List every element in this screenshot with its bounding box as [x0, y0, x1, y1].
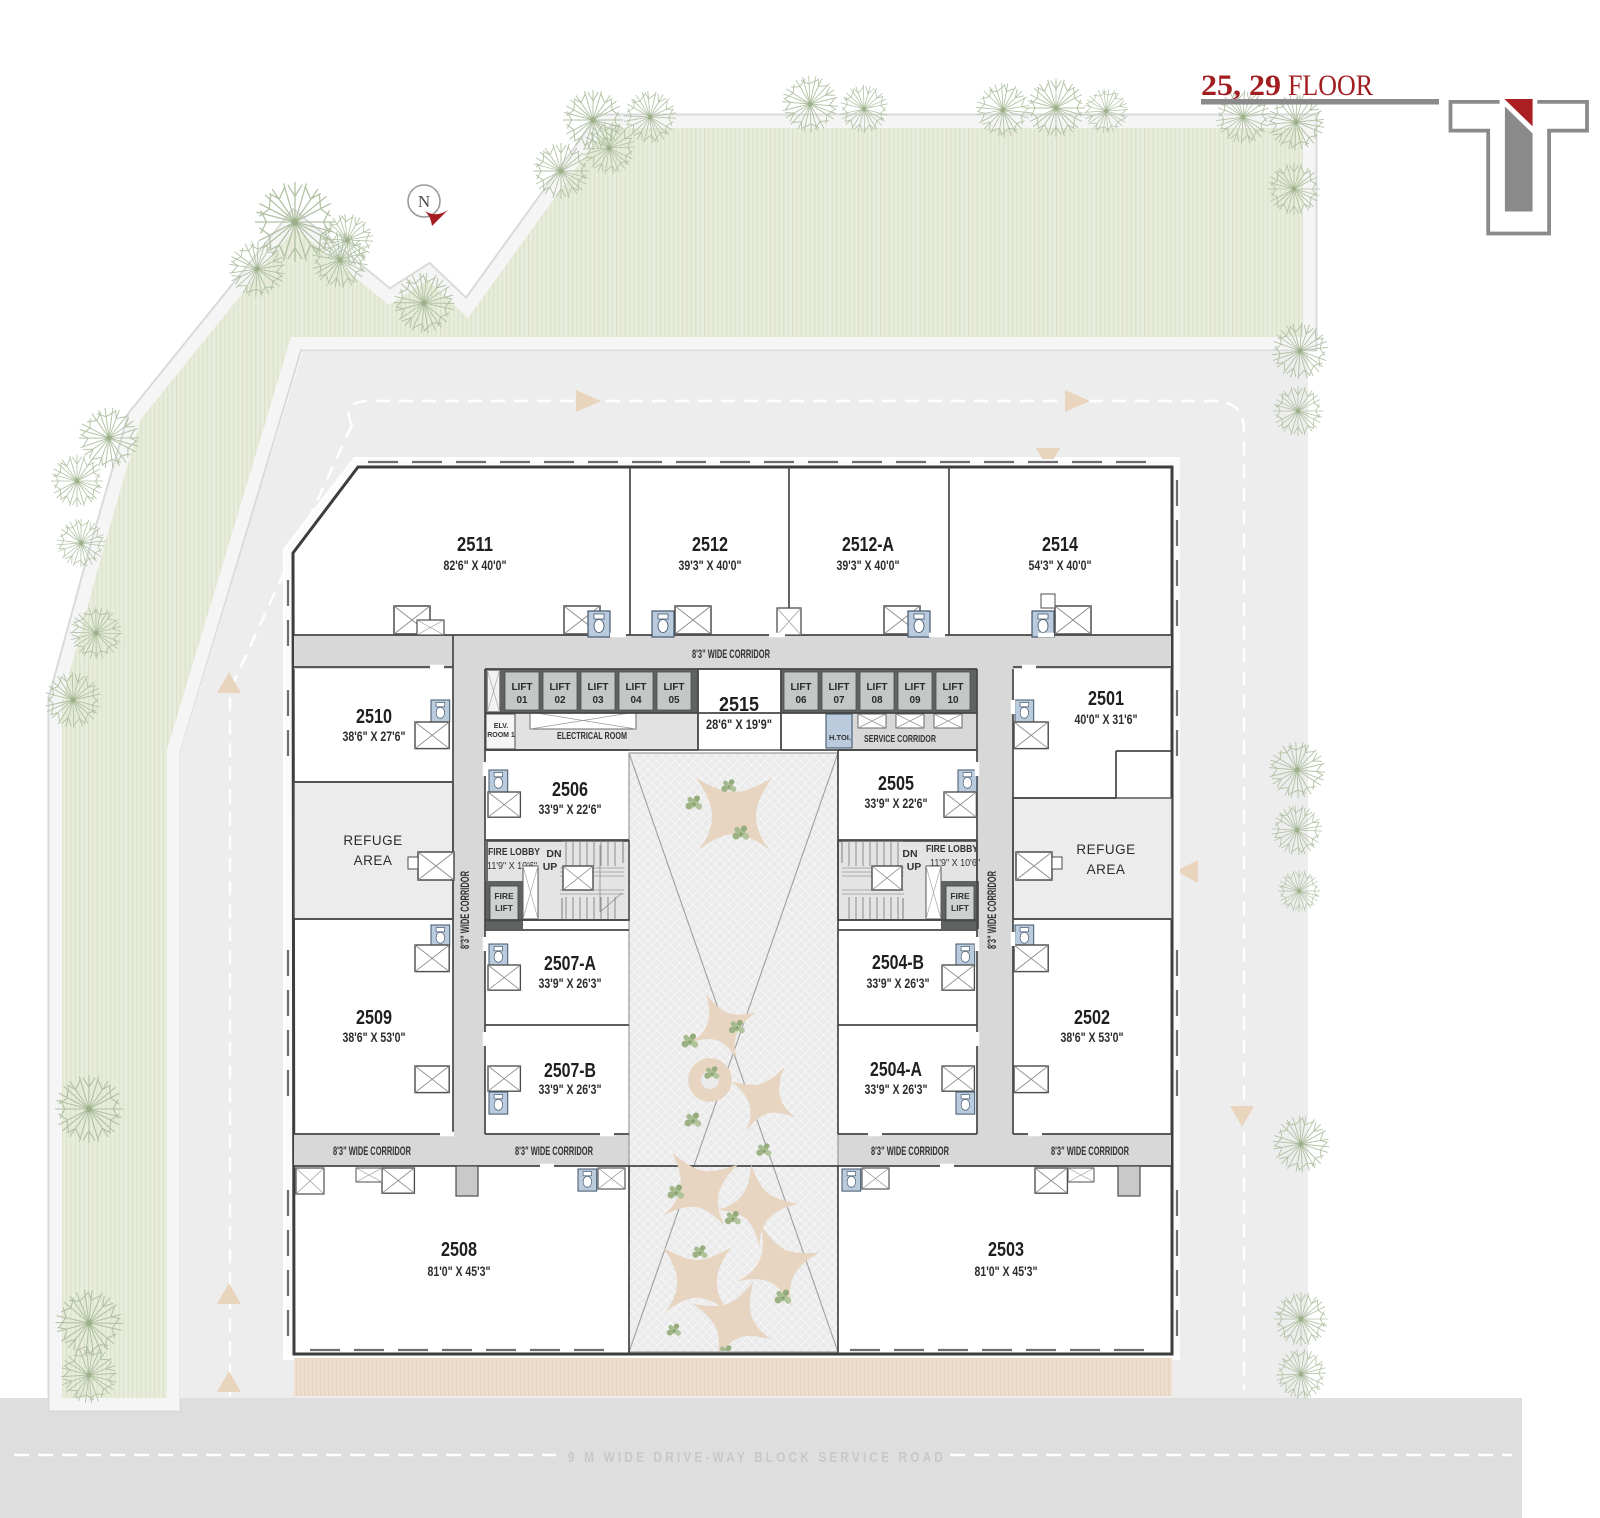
svg-text:AREA: AREA	[354, 853, 393, 868]
svg-text:8'3" WIDE CORRIDOR: 8'3" WIDE CORRIDOR	[692, 649, 770, 661]
svg-text:UP: UP	[543, 861, 558, 873]
svg-text:2509: 2509	[356, 1007, 392, 1029]
svg-text:03: 03	[592, 695, 604, 706]
svg-text:8'3" WIDE CORRIDOR: 8'3" WIDE CORRIDOR	[460, 871, 472, 949]
svg-text:33'9" X 22'6": 33'9" X 22'6"	[539, 802, 602, 817]
svg-text:2510: 2510	[356, 706, 392, 728]
svg-text:LIFT: LIFT	[587, 682, 608, 693]
svg-text:LIFT: LIFT	[663, 682, 684, 693]
svg-text:FIRE: FIRE	[494, 891, 514, 901]
svg-text:ELV.: ELV.	[494, 723, 508, 730]
svg-text:8'3" WIDE CORRIDOR: 8'3" WIDE CORRIDOR	[515, 1146, 593, 1158]
svg-text:2512-A: 2512-A	[842, 534, 894, 556]
svg-text:LIFT: LIFT	[904, 682, 925, 693]
svg-text:38'6" X 53'0": 38'6" X 53'0"	[343, 1030, 406, 1045]
svg-text:54'3" X 40'0": 54'3" X 40'0"	[1029, 558, 1092, 573]
svg-text:82'6" X 40'0": 82'6" X 40'0"	[444, 558, 507, 573]
svg-text:2505: 2505	[878, 773, 914, 795]
svg-text:LIFT: LIFT	[495, 903, 514, 913]
svg-text:LIFT: LIFT	[625, 682, 646, 693]
svg-text:2504-B: 2504-B	[872, 952, 924, 974]
svg-text:FIRE: FIRE	[950, 891, 970, 901]
svg-text:UP: UP	[907, 861, 922, 873]
svg-text:2501: 2501	[1088, 688, 1124, 710]
svg-text:05: 05	[668, 695, 680, 706]
svg-text:09: 09	[909, 695, 921, 706]
svg-text:LIFT: LIFT	[511, 682, 532, 693]
svg-text:LIFT: LIFT	[828, 682, 849, 693]
svg-text:REFUGE: REFUGE	[343, 833, 402, 848]
svg-text:2511: 2511	[457, 534, 493, 556]
svg-text:9 M WIDE DRIVE-WAY BLOCK SERVI: 9 M WIDE DRIVE-WAY BLOCK SERVICE ROAD	[568, 1449, 946, 1466]
svg-text:AREA: AREA	[1087, 862, 1126, 877]
svg-text:2502: 2502	[1074, 1007, 1110, 1029]
svg-text:08: 08	[871, 695, 883, 706]
svg-text:FIRE LOBBY: FIRE LOBBY	[488, 846, 540, 858]
svg-text:33'9" X 26'3": 33'9" X 26'3"	[867, 976, 930, 991]
svg-text:2504-A: 2504-A	[870, 1059, 922, 1081]
svg-text:33'9" X 22'6": 33'9" X 22'6"	[865, 796, 928, 811]
svg-text:LIFT: LIFT	[951, 903, 970, 913]
svg-text:2507-A: 2507-A	[544, 953, 596, 975]
svg-text:LIFT: LIFT	[866, 682, 887, 693]
svg-text:REFUGE: REFUGE	[1076, 842, 1135, 857]
svg-text:DN: DN	[902, 848, 917, 860]
svg-text:ROOM 1: ROOM 1	[487, 732, 515, 739]
svg-text:02: 02	[554, 695, 566, 706]
svg-text:8'3" WIDE CORRIDOR: 8'3" WIDE CORRIDOR	[987, 871, 999, 949]
svg-text:33'9" X 26'3": 33'9" X 26'3"	[539, 976, 602, 991]
svg-text:LIFT: LIFT	[549, 682, 570, 693]
svg-text:10: 10	[947, 695, 959, 706]
svg-text:33'9" X 26'3": 33'9" X 26'3"	[539, 1082, 602, 1097]
svg-text:N: N	[418, 192, 430, 211]
svg-text:33'9" X 26'3": 33'9" X 26'3"	[865, 1082, 928, 1097]
svg-text:2507-B: 2507-B	[544, 1060, 596, 1082]
svg-text:39'3" X 40'0": 39'3" X 40'0"	[679, 558, 742, 573]
svg-text:01: 01	[516, 695, 528, 706]
svg-text:FIRE LOBBY: FIRE LOBBY	[926, 843, 978, 855]
svg-text:81'0" X 45'3": 81'0" X 45'3"	[428, 1264, 491, 1279]
svg-text:2503: 2503	[988, 1239, 1024, 1261]
svg-text:2512: 2512	[692, 534, 728, 556]
svg-text:H.TOI.: H.TOI.	[829, 733, 851, 742]
svg-text:2514: 2514	[1042, 534, 1079, 556]
svg-text:06: 06	[795, 695, 807, 706]
svg-text:8'3" WIDE CORRIDOR: 8'3" WIDE CORRIDOR	[871, 1146, 949, 1158]
svg-text:38'6" X 27'6": 38'6" X 27'6"	[343, 729, 406, 744]
svg-text:81'0" X 45'3": 81'0" X 45'3"	[975, 1264, 1038, 1279]
svg-text:38'6" X 53'0": 38'6" X 53'0"	[1061, 1030, 1124, 1045]
svg-text:8'3" WIDE CORRIDOR: 8'3" WIDE CORRIDOR	[1051, 1146, 1129, 1158]
svg-text:28'6" X 19'9": 28'6" X 19'9"	[706, 717, 772, 732]
svg-text:04: 04	[630, 695, 642, 706]
svg-text:2506: 2506	[552, 779, 588, 801]
svg-text:ELECTRICAL ROOM: ELECTRICAL ROOM	[557, 730, 627, 742]
svg-text:8'3" WIDE CORRIDOR: 8'3" WIDE CORRIDOR	[333, 1146, 411, 1158]
svg-text:SERVICE CORRIDOR: SERVICE CORRIDOR	[864, 733, 936, 745]
svg-text:07: 07	[833, 695, 845, 706]
svg-text:40'0" X 31'6": 40'0" X 31'6"	[1075, 712, 1138, 727]
svg-text:39'3" X 40'0": 39'3" X 40'0"	[837, 558, 900, 573]
svg-text:FLOOR: FLOOR	[1288, 69, 1373, 102]
svg-text:LIFT: LIFT	[790, 682, 811, 693]
svg-text:DN: DN	[546, 848, 561, 860]
svg-text:25, 29: 25, 29	[1201, 69, 1281, 102]
svg-text:2508: 2508	[441, 1239, 477, 1261]
svg-text:LIFT: LIFT	[942, 682, 963, 693]
